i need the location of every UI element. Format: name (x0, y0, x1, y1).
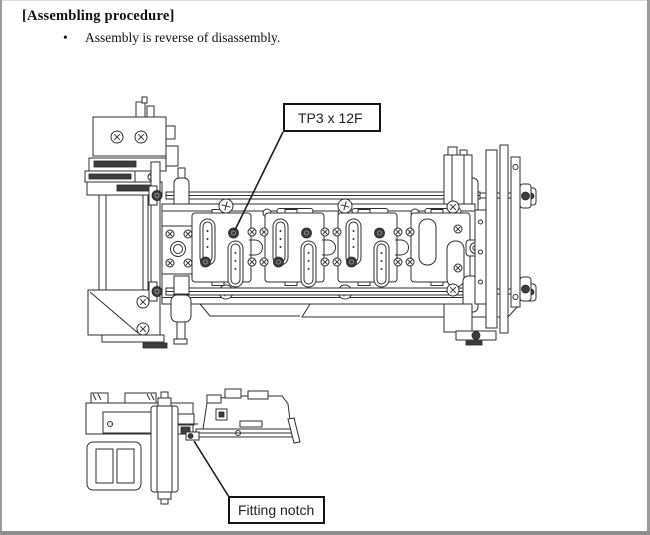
head-module-3 (338, 210, 397, 288)
side-right-assembly (196, 389, 300, 443)
tp3-screw-label: TP3 x 12F (298, 110, 363, 126)
notch-leader-line (194, 441, 229, 497)
head-module-4 (411, 210, 470, 288)
tp3-screw-callout: TP3 x 12F (283, 103, 381, 132)
assembly-diagram (0, 0, 650, 535)
mechanism-front-view-diagram (85, 97, 536, 348)
page: [Assembling procedure] • Assembly is rev… (0, 0, 650, 535)
side-left-assembly (86, 392, 194, 504)
fitting-notch-callout: Fitting notch (228, 496, 325, 524)
head-module-2 (265, 210, 324, 288)
head-module-1 (192, 210, 251, 288)
mechanism-side-view-diagram (86, 389, 300, 504)
fitting-notch-label: Fitting notch (238, 502, 314, 518)
